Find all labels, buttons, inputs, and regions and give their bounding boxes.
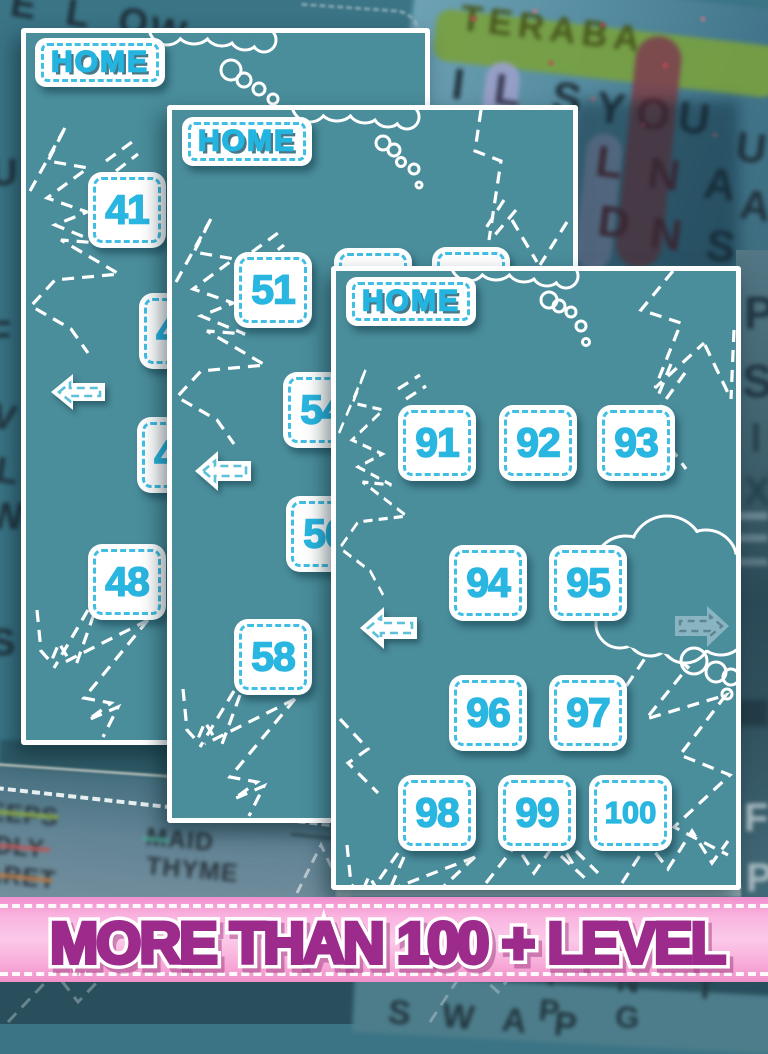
svg-text:MORE THAN 100 + LEVEL: MORE THAN 100 + LEVEL [50,911,726,976]
